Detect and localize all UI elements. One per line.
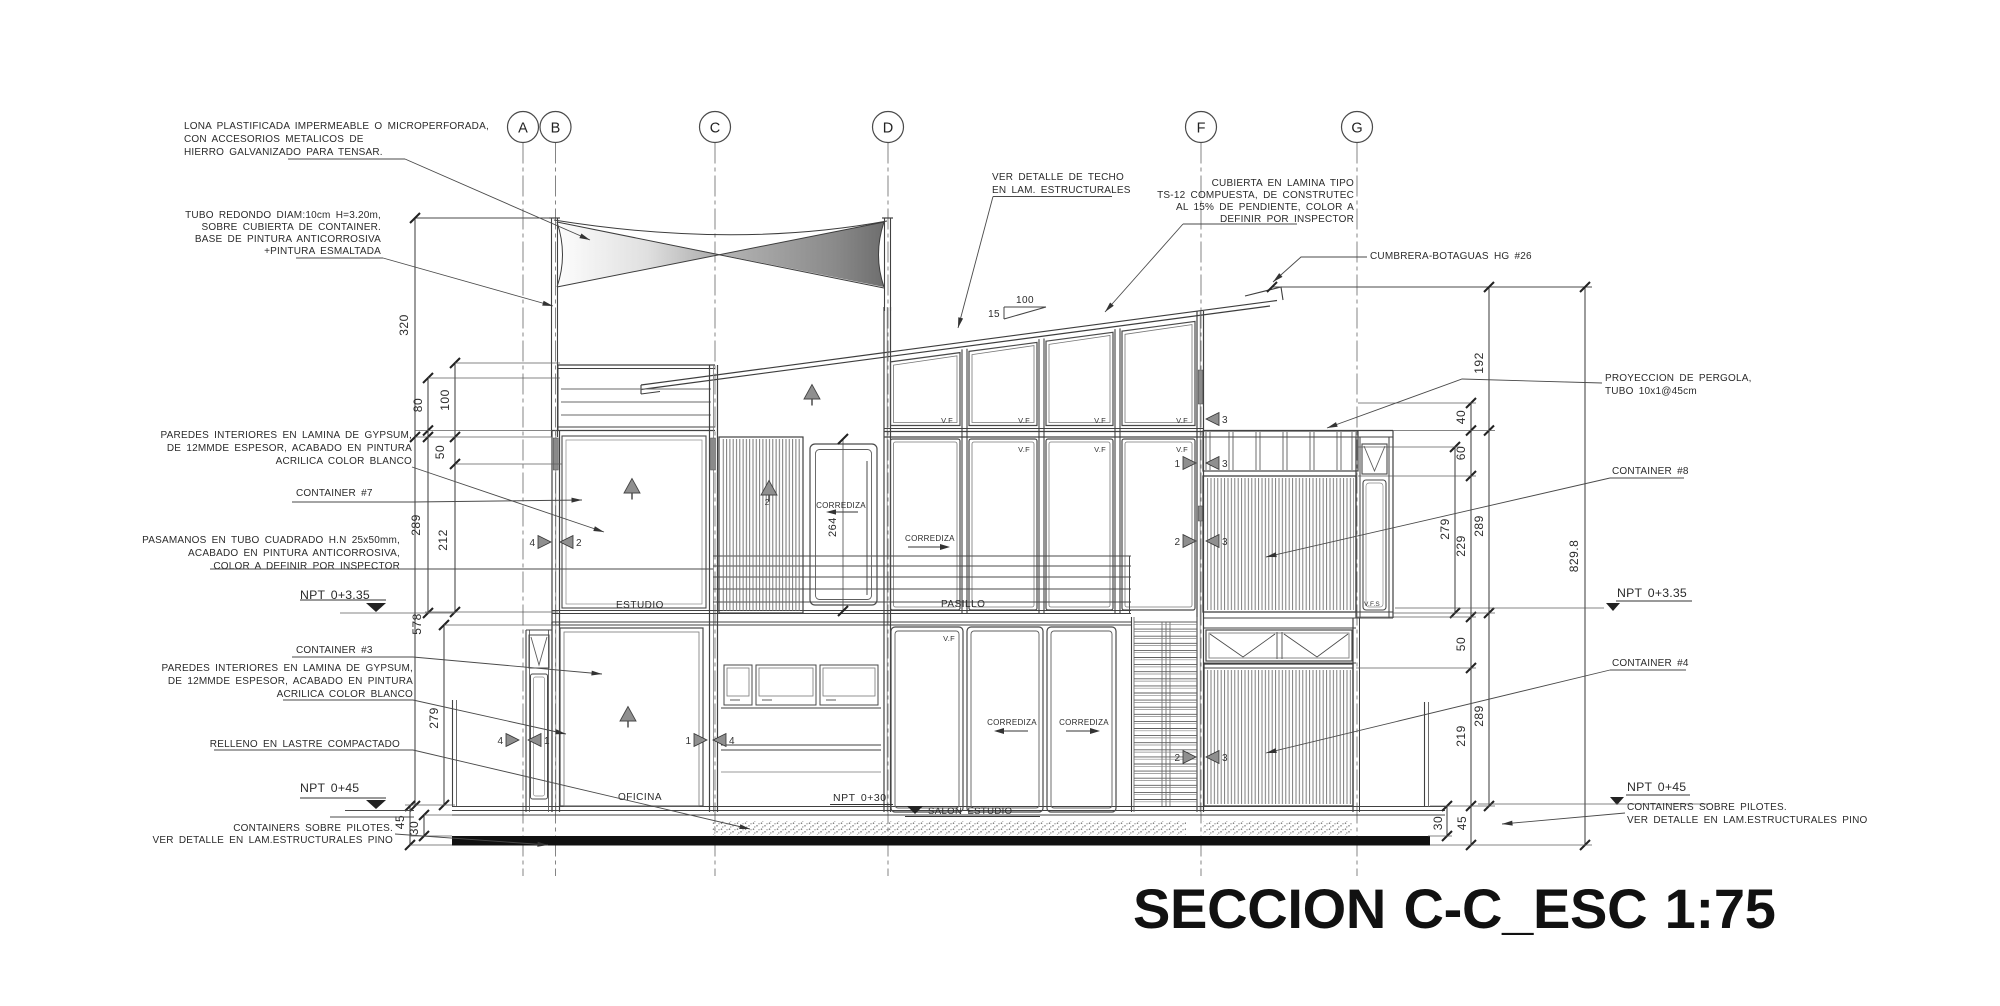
- svg-text:212: 212: [436, 529, 450, 551]
- svg-text:CONTAINER #3: CONTAINER #3: [296, 645, 373, 656]
- svg-text:V.F: V.F: [943, 634, 955, 643]
- svg-text:578: 578: [410, 613, 424, 635]
- svg-text:320: 320: [397, 314, 411, 336]
- svg-text:4: 4: [497, 736, 503, 747]
- svg-text:ESTUDIO: ESTUDIO: [616, 600, 664, 611]
- svg-text:4: 4: [729, 736, 735, 747]
- svg-text:PAREDES INTERIORES EN LAMINA D: PAREDES INTERIORES EN LAMINA DE GYPSUM,: [162, 663, 413, 674]
- svg-text:30: 30: [1431, 816, 1445, 830]
- svg-text:80: 80: [411, 398, 425, 412]
- svg-text:V.F: V.F: [1176, 445, 1188, 454]
- svg-text:BASE DE PINTURA ANTICORROSIVA: BASE DE PINTURA ANTICORROSIVA: [195, 234, 381, 245]
- svg-text:TUBO 10x1@45cm: TUBO 10x1@45cm: [1605, 386, 1697, 397]
- svg-text:ACRILICA COLOR BLANCO: ACRILICA COLOR BLANCO: [277, 689, 413, 700]
- svg-text:NPT 0+30: NPT 0+30: [833, 792, 887, 804]
- svg-text:1: 1: [1174, 459, 1180, 470]
- svg-text:TS-12 COMPUESTA, DE CONSTRUTEC: TS-12 COMPUESTA, DE CONSTRUTEC: [1157, 190, 1354, 201]
- svg-text:3: 3: [1222, 537, 1228, 548]
- svg-text:V.F: V.F: [1094, 416, 1106, 425]
- svg-text:CORREDIZA: CORREDIZA: [816, 501, 866, 510]
- svg-text:AL 15% DE PENDIENTE, COLOR A: AL 15% DE PENDIENTE, COLOR A: [1176, 202, 1354, 213]
- svg-text:829.8: 829.8: [1567, 540, 1581, 573]
- svg-text:4: 4: [529, 538, 535, 549]
- svg-text:CORREDIZA: CORREDIZA: [905, 534, 955, 543]
- svg-text:60: 60: [1454, 446, 1468, 460]
- svg-text:VER DETALLE EN LAM.ESTRUCTURAL: VER DETALLE EN LAM.ESTRUCTURALES PINO: [1627, 815, 1868, 826]
- svg-text:V.F: V.F: [1018, 445, 1030, 454]
- svg-text:2: 2: [765, 498, 770, 507]
- svg-text:V.F: V.F: [1176, 416, 1188, 425]
- svg-text:SALON ESTUDIO: SALON ESTUDIO: [928, 806, 1012, 817]
- svg-text:CORREDIZA: CORREDIZA: [987, 718, 1037, 727]
- svg-text:CONTAINERS SOBRE PILOTES.: CONTAINERS SOBRE PILOTES.: [233, 823, 393, 834]
- svg-text:F: F: [1197, 121, 1206, 137]
- svg-text:219: 219: [1454, 725, 1468, 747]
- svg-text:289: 289: [1472, 705, 1486, 727]
- svg-text:CONTAINERS SOBRE PILOTES.: CONTAINERS SOBRE PILOTES.: [1627, 802, 1787, 813]
- svg-text:PROYECCION DE PERGOLA,: PROYECCION DE PERGOLA,: [1605, 373, 1752, 384]
- svg-text:V.F: V.F: [1018, 416, 1030, 425]
- svg-text:TUBO REDONDO DIAM:10cm H=3.20m: TUBO REDONDO DIAM:10cm H=3.20m,: [185, 210, 381, 221]
- svg-text:V.F.S: V.F.S: [1364, 601, 1380, 608]
- svg-text:3: 3: [1222, 459, 1228, 470]
- svg-text:V.F: V.F: [941, 416, 953, 425]
- svg-text:50: 50: [1454, 637, 1468, 651]
- svg-text:2: 2: [1174, 537, 1180, 548]
- svg-text:289: 289: [1472, 515, 1486, 537]
- svg-text:PASILLO: PASILLO: [941, 599, 985, 610]
- svg-text:RELLENO EN LASTRE COMPACTADO: RELLENO EN LASTRE COMPACTADO: [210, 739, 400, 750]
- svg-text:ACRILICA COLOR BLANCO: ACRILICA COLOR BLANCO: [276, 456, 412, 467]
- svg-text:2: 2: [1174, 753, 1180, 764]
- svg-text:SECCION C-C_ESC 1:75: SECCION C-C_ESC 1:75: [1133, 877, 1776, 940]
- svg-text:EN LAM. ESTRUCTURALES: EN LAM. ESTRUCTURALES: [992, 185, 1131, 196]
- svg-text:3: 3: [1222, 753, 1228, 764]
- svg-text:NPT 0+45: NPT 0+45: [1627, 780, 1686, 794]
- svg-text:45: 45: [1455, 816, 1469, 830]
- svg-text:COLOR A DEFINIR POR INSPECTOR: COLOR A DEFINIR POR INSPECTOR: [213, 561, 400, 572]
- svg-text:DE 12MMDE ESPESOR, ACABADO EN: DE 12MMDE ESPESOR, ACABADO EN PINTURA: [168, 676, 413, 687]
- svg-text:OFICINA: OFICINA: [618, 792, 662, 803]
- svg-text:3: 3: [1222, 415, 1228, 426]
- svg-text:NPT 0+45: NPT 0+45: [300, 781, 359, 795]
- svg-text:CON ACCESORIOS METALICOS DE: CON ACCESORIOS METALICOS DE: [184, 134, 364, 145]
- svg-text:CUBIERTA EN LAMINA TIPO: CUBIERTA EN LAMINA TIPO: [1212, 178, 1354, 189]
- svg-text:NPT 0+3.35: NPT 0+3.35: [1617, 586, 1687, 600]
- svg-text:40: 40: [1454, 410, 1468, 424]
- svg-text:ACABADO EN PINTURA ANTICORROSI: ACABADO EN PINTURA ANTICORROSIVA,: [188, 548, 400, 559]
- svg-text:HIERRO GALVANIZADO PARA TENSAR: HIERRO GALVANIZADO PARA TENSAR.: [184, 147, 383, 158]
- svg-text:100: 100: [438, 389, 452, 411]
- svg-text:V.F: V.F: [1094, 445, 1106, 454]
- svg-text:DE 12MMDE ESPESOR, ACABADO EN: DE 12MMDE ESPESOR, ACABADO EN PINTURA: [167, 443, 412, 454]
- svg-text:+PINTURA ESMALTADA: +PINTURA ESMALTADA: [264, 246, 381, 257]
- svg-text:264: 264: [827, 517, 839, 537]
- svg-text:VER DETALLE DE TECHO: VER DETALLE DE TECHO: [992, 172, 1124, 183]
- svg-text:DEFINIR POR INSPECTOR: DEFINIR POR INSPECTOR: [1220, 214, 1354, 225]
- svg-text:15: 15: [988, 309, 1000, 320]
- svg-text:100: 100: [1016, 295, 1034, 306]
- svg-text:CONTAINER #4: CONTAINER #4: [1612, 658, 1689, 669]
- svg-text:D: D: [883, 121, 893, 137]
- svg-text:1: 1: [544, 736, 550, 747]
- svg-text:A: A: [518, 121, 528, 137]
- svg-text:1: 1: [685, 736, 691, 747]
- svg-text:279: 279: [427, 707, 441, 729]
- svg-text:192: 192: [1472, 352, 1486, 374]
- svg-text:G: G: [1351, 121, 1362, 137]
- svg-text:C: C: [710, 121, 720, 137]
- svg-text:PAREDES INTERIORES EN LAMINA D: PAREDES INTERIORES EN LAMINA DE GYPSUM,: [161, 430, 412, 441]
- svg-text:B: B: [551, 121, 561, 137]
- svg-text:CONTAINER #8: CONTAINER #8: [1612, 466, 1689, 477]
- svg-text:VER DETALLE EN LAM.ESTRUCTURAL: VER DETALLE EN LAM.ESTRUCTURALES PINO: [152, 835, 393, 846]
- svg-text:279: 279: [1438, 518, 1452, 540]
- svg-text:CORREDIZA: CORREDIZA: [1059, 718, 1109, 727]
- svg-text:PASAMANOS EN TUBO CUADRADO H.N: PASAMANOS EN TUBO CUADRADO H.N 25x50mm,: [142, 535, 400, 546]
- svg-text:229: 229: [1454, 535, 1468, 557]
- svg-text:CUMBRERA-BOTAGUAS HG #26: CUMBRERA-BOTAGUAS HG #26: [1370, 251, 1532, 262]
- svg-text:30: 30: [407, 821, 421, 835]
- svg-text:SOBRE CUBIERTA DE CONTAINER.: SOBRE CUBIERTA DE CONTAINER.: [202, 222, 381, 233]
- svg-text:2: 2: [576, 538, 582, 549]
- svg-text:CONTAINER #7: CONTAINER #7: [296, 488, 373, 499]
- svg-text:50: 50: [433, 445, 447, 459]
- svg-text:289: 289: [409, 514, 423, 536]
- svg-text:LONA PLASTIFICADA IMPERMEABLE: LONA PLASTIFICADA IMPERMEABLE O MICROPER…: [184, 121, 489, 132]
